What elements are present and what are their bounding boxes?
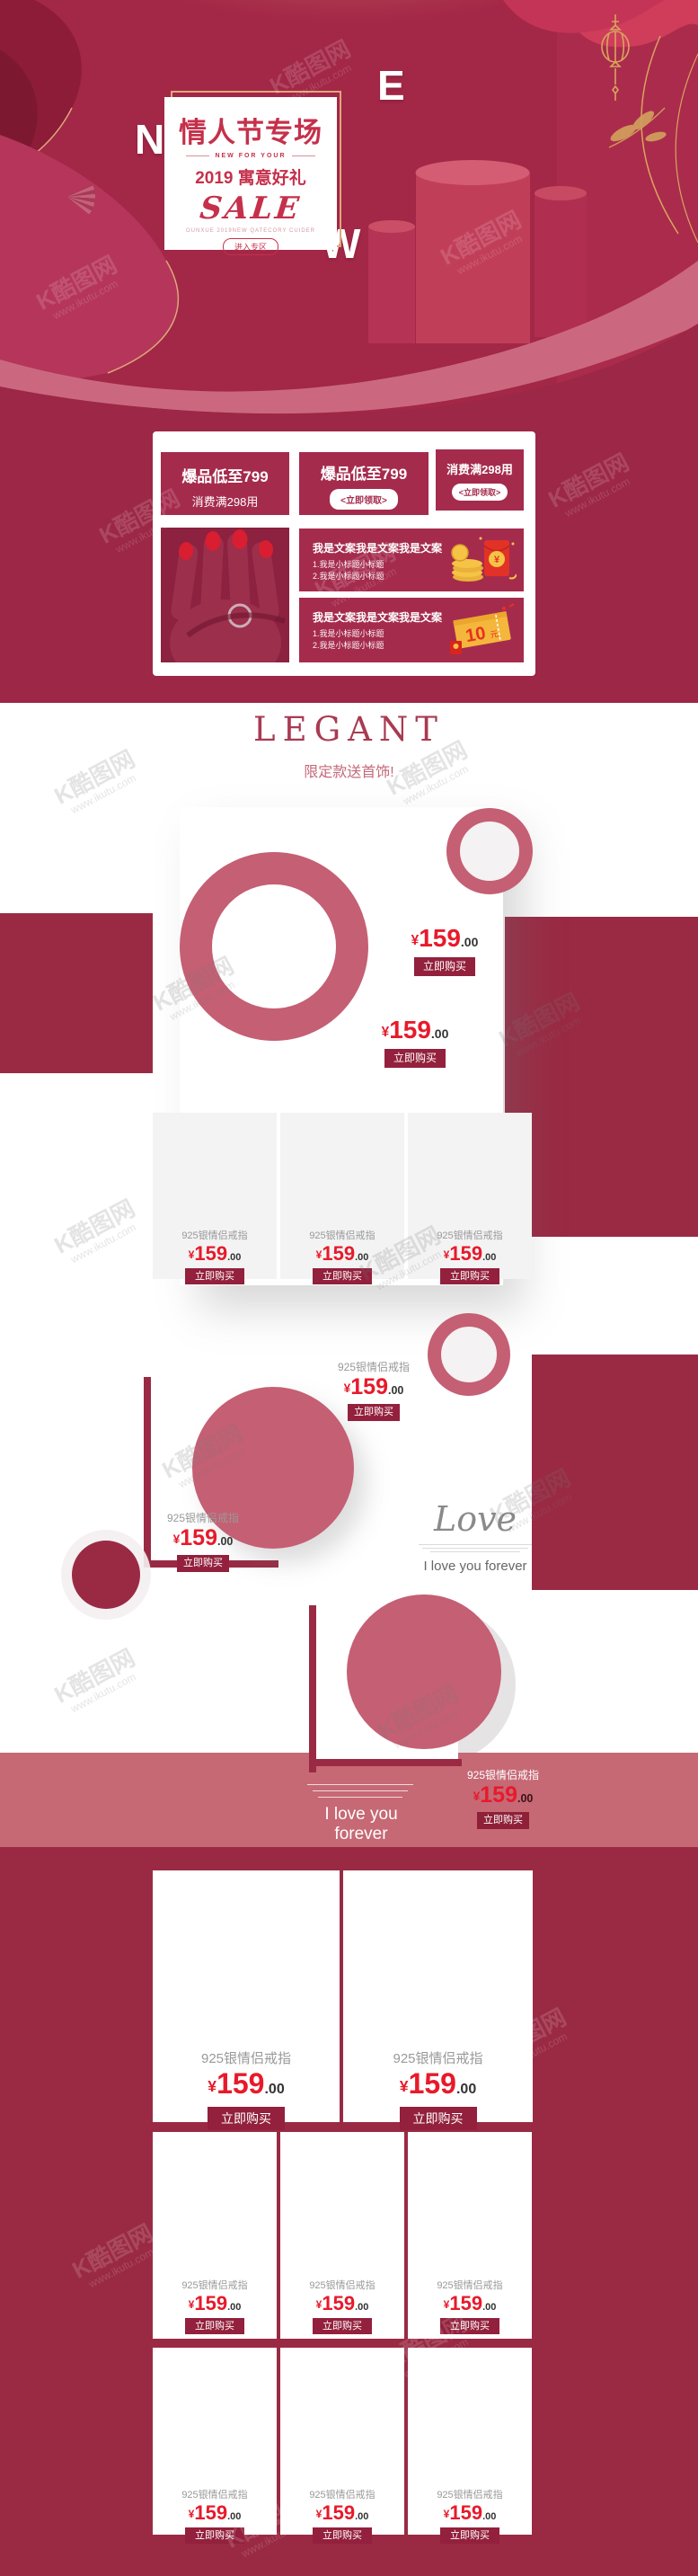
product-card[interactable]: 925银情侣戒指 ¥159.00 立即购买 [153,1113,277,1279]
coupon-headline: 爆品低至799 [161,464,289,486]
rule-line [186,155,209,156]
decor-line [430,1551,520,1552]
product-card[interactable]: 925银情侣戒指 ¥159.00 立即购买 [408,2348,532,2535]
product-name: 925银情侣戒指 [153,1228,277,1242]
product-card[interactable]: 925银情侣戒指 ¥159.00 立即购买 [280,2348,404,2535]
coupon-unit: 元 [490,629,499,639]
corner-bracket [309,1605,316,1772]
corner-bracket [309,1759,462,1766]
band-caption: I love you forever [298,1805,424,1844]
price-decimal: .00 [227,1252,241,1263]
rule-line [292,155,315,156]
buy-now-button[interactable]: 立即购买 [384,1049,446,1068]
bg-letter-e: E [377,61,405,110]
price: ¥159.00 [352,1016,478,1044]
price-decimal: .00 [355,1252,368,1263]
buy-now-button[interactable]: 立即购买 [440,2527,499,2544]
product-card[interactable]: 925银情侣戒指 ¥159.00 立即购买 [408,1113,532,1279]
product-name: 925银情侣戒指 [280,2278,404,2292]
leaf-icon [604,101,668,153]
hero-sale-text: SALE [163,191,339,227]
price-integer: 159 [350,1374,388,1399]
offer-block: ¥159.00 立即购买 [352,1016,478,1068]
price-decimal: .00 [431,1026,448,1041]
hero-kicker: NEW FOR YOUR [164,153,337,159]
price: ¥159.00 [153,2292,277,2315]
price-integer: 159 [322,2501,355,2524]
price-integer: 159 [322,1242,355,1265]
product-name: 925银情侣戒指 [311,1359,437,1374]
product-name: 925银情侣戒指 [153,2048,340,2067]
price: ¥159.00 [408,2292,532,2315]
coupon-panel: 爆品低至799 消费满298用 爆品低至799 <立即领取> 消费满298用 <… [153,431,535,676]
section-title: LEGANT [0,710,698,749]
offer-block: 925银情侣戒指 ¥159.00 立即购买 [311,1359,437,1421]
buy-now-button[interactable]: 立即购买 [177,1555,229,1572]
red-envelope-coins-icon: ¥ [448,535,517,585]
price-integer: 159 [409,2067,456,2100]
coupon-card-3[interactable]: 消费满298用 <立即领取> [436,449,524,511]
product-card[interactable]: 925银情侣戒指 ¥159.00 立即购买 [280,2132,404,2339]
decor-block-right [532,1355,698,1590]
decor-block-right [505,917,698,1237]
circle-decor-dark [72,1541,140,1609]
banner-title: 我是文案我是文案我是文案 [313,540,442,555]
product-name: 925银情侣戒指 [280,1228,404,1242]
promo-banner-2[interactable]: 我是文案我是文案我是文案 1.我是小标题小标题 2.我是小标题小标题 10 元 [299,598,524,662]
product-card[interactable]: 925银情侣戒指 ¥159.00 立即购买 [408,2132,532,2339]
product-name: 925银情侣戒指 [440,1767,566,1782]
offer-block: 925银情侣戒指 ¥159.00 立即购买 [440,1767,566,1829]
buy-now-button[interactable]: 立即购买 [348,1404,400,1421]
hero-subtitle: 2019 寓意好礼 [164,164,337,189]
love-script: Love [403,1499,547,1539]
product-name: 925银情侣戒指 [153,2278,277,2292]
product-name: 925银情侣戒指 [153,2487,277,2501]
price: ¥159.00 [140,1525,266,1551]
banner-subtitle-1: 1.我是小标题小标题 [313,627,384,639]
coupon-condition: 消费满298用 [161,493,289,510]
circle-decor [347,1594,501,1749]
featured-product-card[interactable]: 925银情侣戒指 ¥159.00 立即购买 [153,1870,340,2122]
product-name: 925银情侣戒指 [343,2048,533,2067]
price-integer: 159 [449,1242,482,1265]
hero-card: 情人节专场 NEW FOR YOUR 2019 寓意好礼 SALE OUNXUE… [164,97,337,250]
section-subtitle: 限定款送首饰! [0,759,698,781]
product-name: 925银情侣戒指 [408,2278,532,2292]
coupon-card-2[interactable]: 爆品低至799 <立即领取> [299,452,429,515]
buy-now-button[interactable]: 立即购买 [440,2318,499,2334]
hero-banner: N E W 情人节专场 [0,0,698,467]
price-integer: 159 [194,1242,227,1265]
price-decimal: .00 [227,2302,241,2313]
hero-kicker-text: NEW FOR YOUR [215,153,286,159]
price: ¥159.00 [408,1242,532,1266]
coupon-value: 10 [464,624,488,647]
price-integer: 159 [389,1016,431,1044]
promo-banner-1[interactable]: 我是文案我是文案我是文案 1.我是小标题小标题 2.我是小标题小标题 ¥ [299,529,524,591]
enter-zone-button[interactable]: 进入专区 [223,238,278,255]
currency-symbol: ¥ [382,1025,390,1040]
hand-photo [161,528,289,662]
buy-now-button[interactable]: 立即购买 [185,2527,244,2544]
buy-now-button[interactable]: 立即购买 [313,1268,372,1284]
price-decimal: .00 [482,2511,496,2522]
currency-symbol: ¥ [400,2077,409,2095]
svg-text:¥: ¥ [494,555,500,565]
price-decimal: .00 [264,2082,284,2097]
bg-letter-n: N [135,115,164,164]
product-name: 925银情侣戒指 [280,2487,404,2501]
price-decimal: .00 [355,2302,368,2313]
price: ¥159.00 [280,2292,404,2315]
ring-decor-large [180,852,368,1041]
price-decimal: .00 [482,2302,496,2313]
offer-block: 925银情侣戒指 ¥159.00 立即购买 [140,1510,266,1572]
ring-decor-small [446,808,533,894]
buy-now-button[interactable]: 立即购买 [400,2107,477,2130]
product-card[interactable]: 925银情侣戒指 ¥159.00 立即购买 [153,2132,277,2339]
price-integer: 159 [480,1782,517,1808]
product-name: 925银情侣戒指 [408,1228,532,1242]
coupon-headline: 爆品低至799 [299,461,429,484]
price: ¥159.00 [311,1374,437,1400]
price: ¥159.00 [153,1242,277,1266]
decor-line [419,1544,532,1545]
price-integer: 159 [419,924,461,952]
buy-now-button[interactable]: 立即购买 [440,1268,499,1284]
price-integer: 159 [216,2067,264,2100]
coupon-card-1[interactable]: 爆品低至799 消费满298用 [161,452,289,515]
hero-tagline: OUNXUE 2019NEW QATECORY CUIDER [164,228,337,234]
price-integer: 159 [449,2292,482,2314]
claim-coupon-button[interactable]: <立即领取> [452,484,508,501]
buy-now-button[interactable]: 立即购买 [208,2107,285,2130]
love-caption-block: Love I love you forever [403,1499,547,1574]
product-name: 925银情侣戒指 [140,1510,266,1525]
product-card[interactable]: 925银情侣戒指 ¥159.00 立即购买 [153,2348,277,2535]
price-decimal: .00 [227,2511,241,2522]
price: ¥159.00 [343,2067,533,2101]
decor-line [307,1784,413,1785]
price: ¥159.00 [153,2501,277,2525]
price-decimal: .00 [456,2082,476,2097]
buy-now-button[interactable]: 立即购买 [313,2318,372,2334]
buy-now-button[interactable]: 立即购买 [477,1812,529,1829]
price-integer: 159 [449,2501,482,2524]
buy-now-button[interactable]: 立即购买 [185,1268,244,1284]
price-integer: 159 [180,1525,217,1550]
price: ¥159.00 [153,2067,340,2101]
price: ¥159.00 [280,2501,404,2525]
buy-now-button[interactable]: 立即购买 [313,2527,372,2544]
price-decimal: .00 [461,935,478,949]
banner-subtitle-2: 2.我是小标题小标题 [313,570,384,582]
hero-title: 情人节专场 [164,110,337,150]
price: ¥159.00 [382,924,508,953]
banner-subtitle-2: 2.我是小标题小标题 [313,639,384,651]
banner-subtitle-1: 1.我是小标题小标题 [313,558,384,570]
lantern-icon [595,14,636,104]
price-integer: 159 [194,2501,227,2524]
decor-line [313,1790,408,1791]
price-decimal: .00 [355,2511,368,2522]
ring-decor [428,1313,510,1396]
claim-coupon-button[interactable]: <立即领取> [330,489,398,510]
love-caption: I love you forever [403,1559,547,1574]
price-decimal: .00 [217,1535,233,1548]
currency-symbol: ¥ [208,2077,216,2095]
decor-block-left [0,913,153,1073]
coupon-headline: 消费满298用 [436,460,524,477]
coupon-ticket-icon: 10 元 [446,603,518,657]
product-name: 925银情侣戒指 [408,2487,532,2501]
decor-line [422,1548,528,1549]
offer-block: ¥159.00 立即购买 [382,924,508,976]
buy-now-button[interactable]: 立即购买 [414,957,475,976]
price-decimal: .00 [517,1792,533,1805]
banner-title: 我是文案我是文案我是文案 [313,609,442,625]
price: ¥159.00 [280,1242,404,1266]
price: ¥159.00 [408,2501,532,2525]
price: ¥159.00 [440,1782,566,1808]
price-decimal: .00 [388,1384,403,1397]
valentine-promo-page: N E W 情人节专场 [0,0,698,2576]
currency-symbol: ¥ [411,933,420,948]
product-card[interactable]: 925银情侣戒指 ¥159.00 立即购买 [280,1113,404,1279]
price-decimal: .00 [482,1252,496,1263]
price-integer: 159 [322,2292,355,2314]
decor-line [318,1797,402,1798]
buy-now-button[interactable]: 立即购买 [185,2318,244,2334]
featured-product-card[interactable]: 925银情侣戒指 ¥159.00 立即购买 [343,1870,533,2122]
price-integer: 159 [194,2292,227,2314]
